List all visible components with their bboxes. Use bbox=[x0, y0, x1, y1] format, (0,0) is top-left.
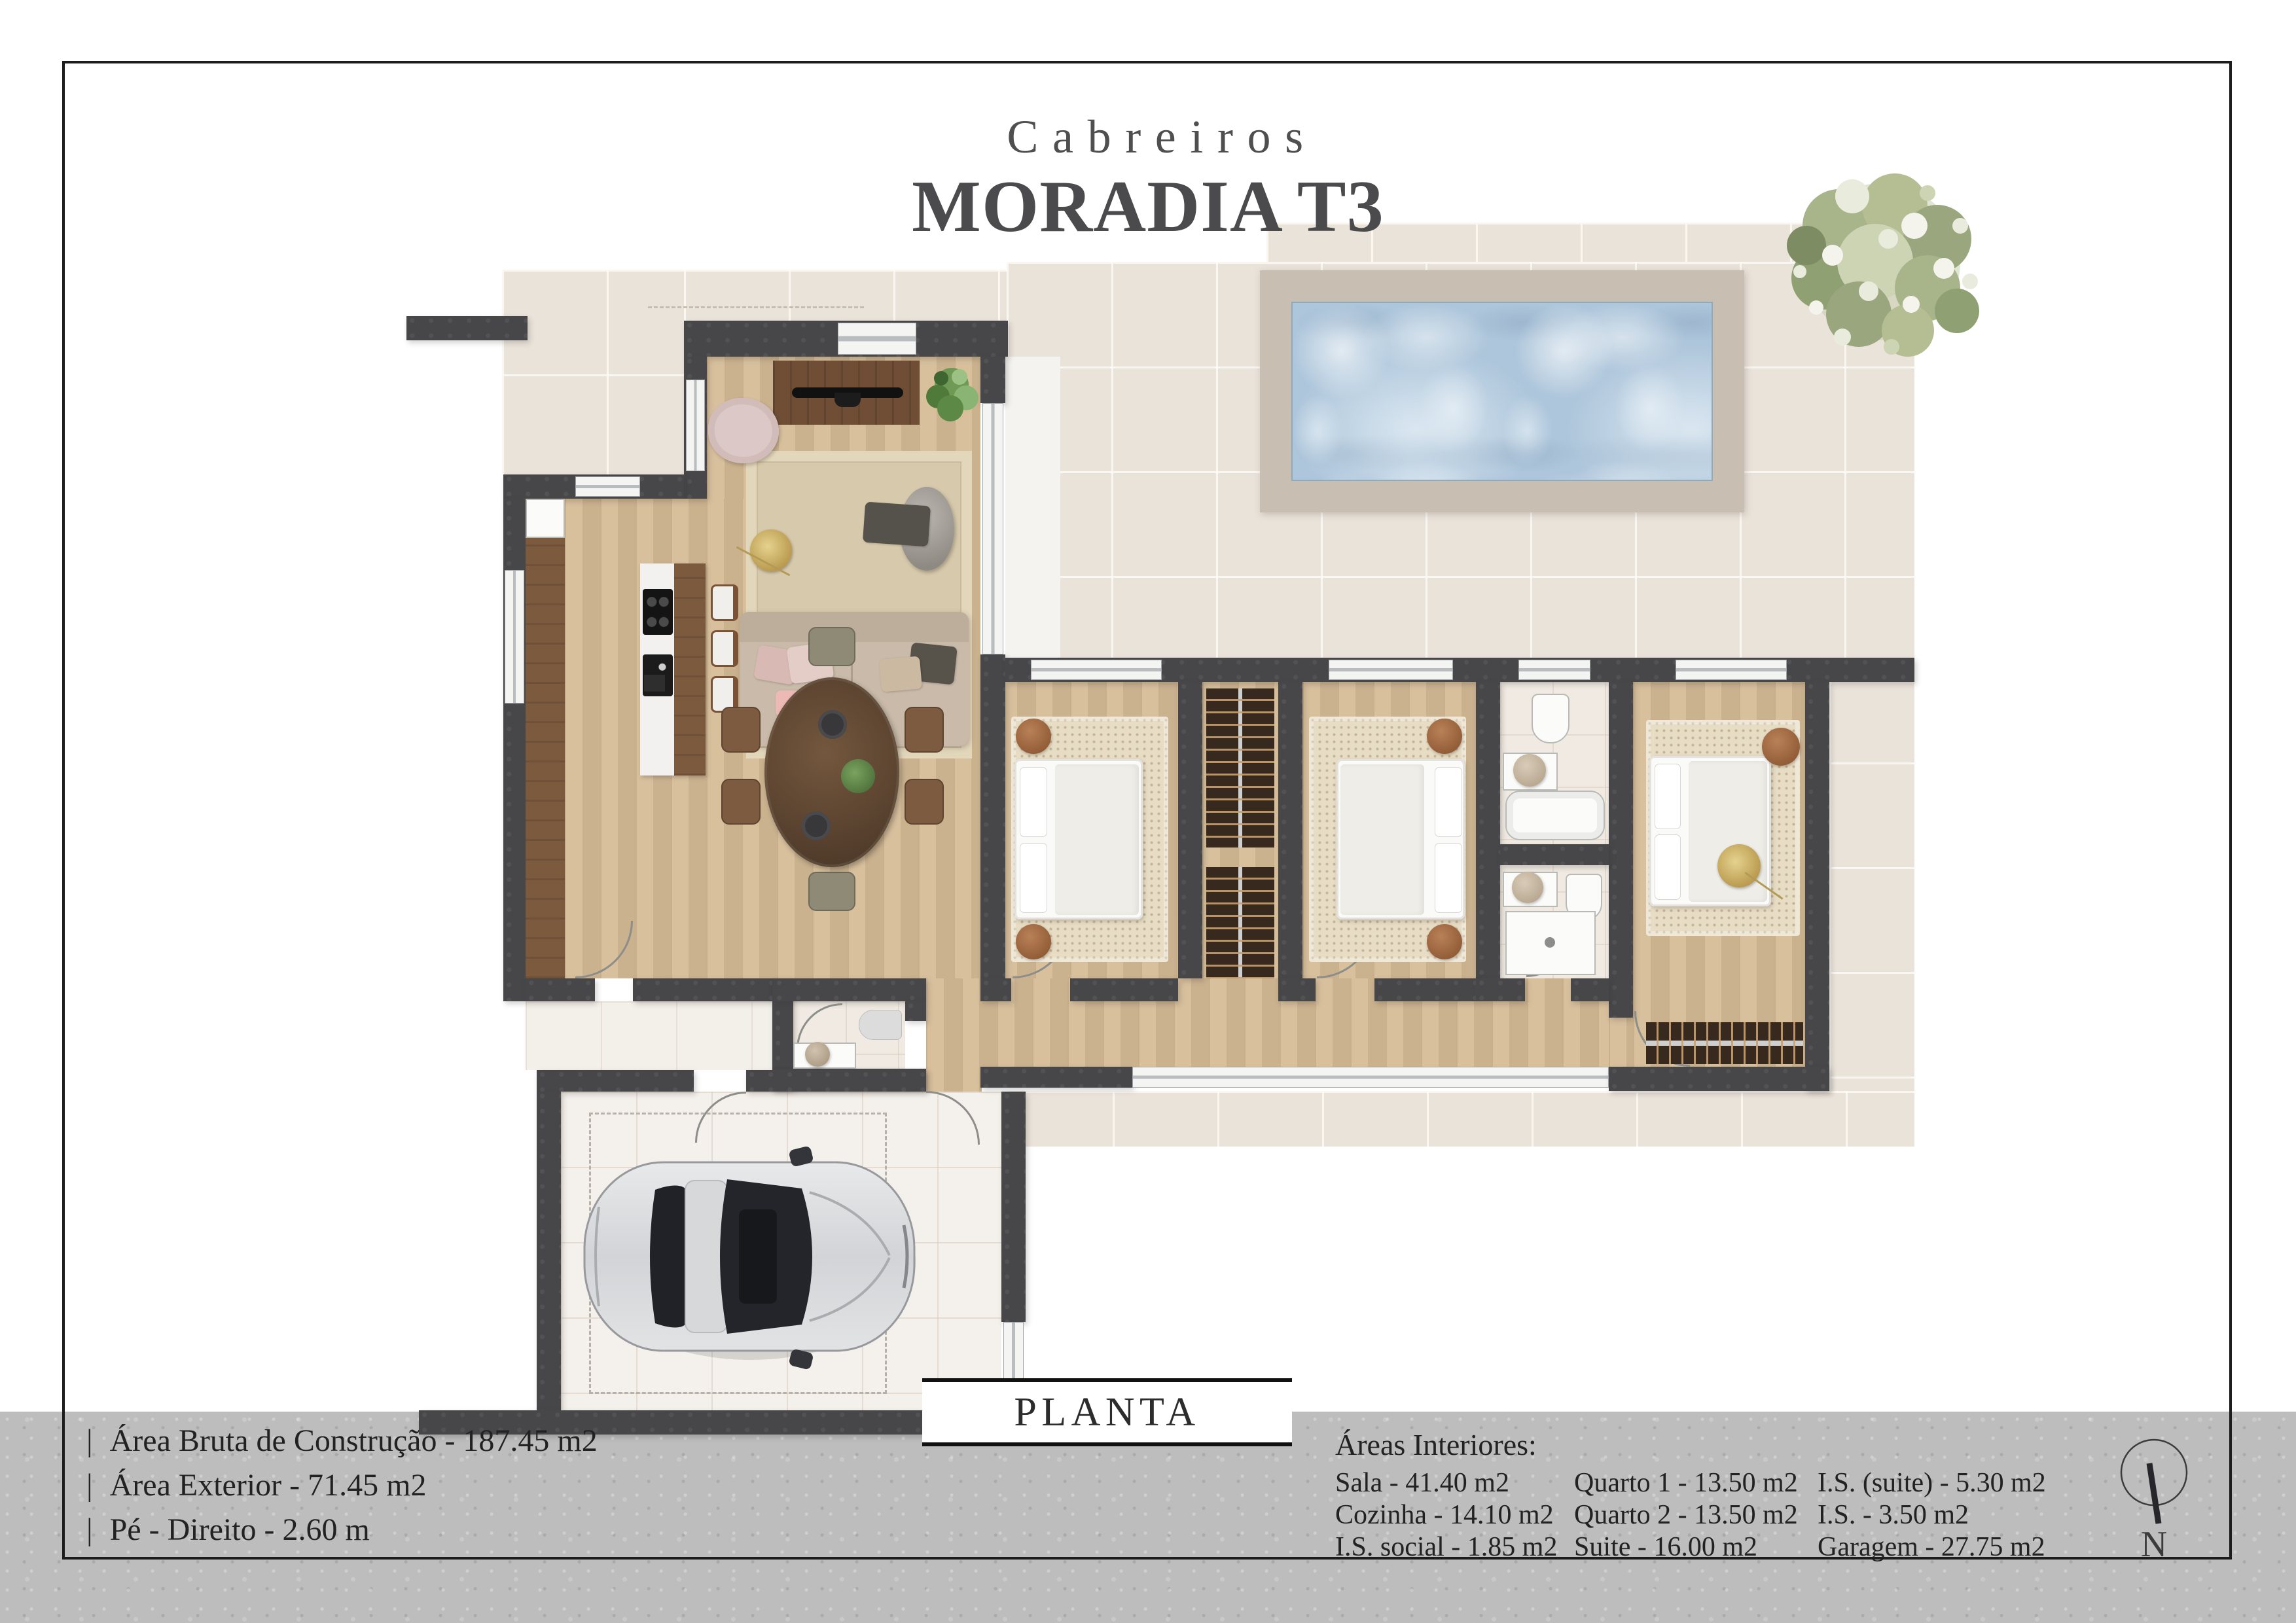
pipe-divider: | bbox=[86, 1419, 93, 1463]
kitchen-sink bbox=[643, 654, 673, 696]
wc-toilet bbox=[859, 1010, 902, 1040]
bar-stool bbox=[711, 630, 738, 667]
interior-areas: Áreas Interiores: Sala - 41.40 m2 Cozinh… bbox=[1335, 1427, 2079, 1563]
walkway-white-strip bbox=[1005, 357, 1060, 658]
suite-wardrobe bbox=[1646, 1022, 1803, 1064]
terrace-top bbox=[684, 270, 1008, 321]
info-left: |Área Bruta de Construção - 187.45 m2 |Á… bbox=[86, 1419, 598, 1552]
plan-label: PLANTA bbox=[1014, 1389, 1200, 1436]
dining-chair bbox=[808, 872, 855, 911]
info-text: Área Bruta de Construção - 187.45 m2 bbox=[110, 1423, 598, 1458]
wall-hall-south bbox=[980, 1067, 1132, 1088]
wc-basin bbox=[805, 1042, 830, 1067]
bedside-table bbox=[1016, 924, 1051, 959]
dining-chair bbox=[721, 779, 761, 825]
areas-column-3: I.S. (suite) - 5.30 m2 I.S. - 3.50 m2 Ga… bbox=[1818, 1467, 2079, 1563]
wall-stub-topleft bbox=[406, 316, 528, 340]
info-line: |Área Exterior - 71.45 m2 bbox=[86, 1463, 598, 1508]
plate bbox=[802, 811, 831, 840]
wall-bath-suite bbox=[1609, 682, 1633, 1018]
window-kitchen-jog bbox=[575, 476, 640, 497]
terrace-walk-south bbox=[1008, 1091, 1914, 1147]
dining-table bbox=[764, 677, 899, 867]
table-plant bbox=[841, 759, 875, 793]
info-text: Área Exterior - 71.45 m2 bbox=[110, 1468, 427, 1503]
washbasin bbox=[1512, 872, 1543, 903]
window-bedroom1 bbox=[1031, 660, 1162, 680]
window-living-left bbox=[686, 380, 705, 471]
entry-porch bbox=[526, 1001, 772, 1070]
wardrobe bbox=[1206, 688, 1274, 847]
dining-chair bbox=[905, 707, 944, 753]
wall-living-bottom-a bbox=[526, 978, 595, 1001]
wall-q1-bottom-a bbox=[980, 978, 1011, 1001]
info-line: |Pé - Direito - 2.60 m bbox=[86, 1508, 598, 1552]
bedside-table bbox=[1427, 924, 1462, 959]
bedside-table bbox=[1427, 719, 1462, 754]
washbasin bbox=[1513, 754, 1546, 787]
area-item: I.S. - 3.50 m2 bbox=[1818, 1499, 2079, 1531]
tv-stand bbox=[834, 393, 861, 407]
wall-q1-corridor bbox=[1178, 682, 1202, 978]
wall-q2-bottom-a bbox=[1278, 978, 1316, 1001]
wall-corridor-q2 bbox=[1278, 682, 1302, 978]
dining-chair bbox=[808, 627, 855, 666]
cooktop bbox=[643, 589, 673, 635]
dining-chair bbox=[905, 779, 944, 825]
wall-bath-divider bbox=[1500, 844, 1609, 865]
window-kitchen-left bbox=[505, 570, 524, 704]
pillow bbox=[1435, 843, 1462, 913]
pool bbox=[1291, 302, 1713, 481]
window-living-top bbox=[838, 323, 916, 355]
window-hall-south-glass bbox=[1132, 1067, 1609, 1088]
suite-door-floor bbox=[1609, 1018, 1633, 1067]
wall-bath-bottom-b bbox=[1571, 978, 1609, 1001]
wardrobe bbox=[1206, 867, 1274, 978]
area-item: Cozinha - 14.10 m2 bbox=[1335, 1499, 1574, 1531]
wall-suite-right bbox=[1805, 682, 1829, 1091]
info-text: Pé - Direito - 2.60 m bbox=[110, 1512, 370, 1547]
kitchen-counter bbox=[526, 538, 565, 978]
terrace-left bbox=[502, 270, 684, 474]
wall-suite-bottom bbox=[1609, 1067, 1829, 1091]
area-item: Quarto 2 - 13.50 m2 bbox=[1574, 1499, 1818, 1531]
wall-wc-right-stub bbox=[905, 1001, 926, 1021]
duvet bbox=[1340, 764, 1424, 915]
pipe-divider: | bbox=[86, 1508, 93, 1552]
terrace-right-strip bbox=[1829, 658, 1914, 1145]
area-item: Quarto 1 - 13.50 m2 bbox=[1574, 1467, 1818, 1499]
dining-chair bbox=[721, 707, 761, 753]
pillow bbox=[1655, 764, 1681, 829]
wall-garage-top-a bbox=[537, 1070, 694, 1092]
wall-garage-left bbox=[537, 1092, 561, 1410]
area-item: Suite - 16.00 m2 bbox=[1574, 1531, 1818, 1563]
bidet bbox=[1532, 694, 1570, 743]
area-item: Sala - 41.40 m2 bbox=[1335, 1467, 1574, 1499]
pipe-divider: | bbox=[86, 1463, 93, 1508]
areas-heading: Áreas Interiores: bbox=[1335, 1427, 2079, 1463]
shower-drain bbox=[1545, 937, 1555, 948]
info-line: |Área Bruta de Construção - 187.45 m2 bbox=[86, 1419, 598, 1463]
pillow bbox=[1020, 767, 1047, 837]
wall-garage-right-a bbox=[1001, 1092, 1026, 1322]
pillow bbox=[1655, 834, 1681, 900]
plant-icon bbox=[922, 359, 984, 437]
areas-columns: Sala - 41.40 m2 Cozinha - 14.10 m2 I.S. … bbox=[1335, 1467, 2079, 1563]
bedside-table bbox=[1016, 719, 1051, 754]
window-bedroom2 bbox=[1329, 660, 1453, 680]
window-bathroom bbox=[1518, 660, 1590, 680]
page-title: MORADIA T3 bbox=[0, 165, 2296, 249]
bedside-table bbox=[1762, 728, 1800, 766]
bar-stool bbox=[711, 584, 738, 621]
compass-north-label: N bbox=[2141, 1524, 2167, 1563]
wall-living-bottom-b bbox=[633, 978, 774, 1001]
wall-q2-bath bbox=[1476, 682, 1500, 978]
brand-name: Cabreiros bbox=[0, 110, 2296, 164]
wall-garage-top-b bbox=[746, 1070, 926, 1092]
window-suite bbox=[1676, 660, 1787, 680]
pillow bbox=[1435, 767, 1462, 837]
area-item: I.S. (suite) - 5.30 m2 bbox=[1818, 1467, 2079, 1499]
area-item: Garagem - 27.75 m2 bbox=[1818, 1531, 2079, 1563]
pillow bbox=[1020, 843, 1047, 913]
kitchen-tall-cabinet bbox=[526, 499, 565, 538]
wall-bath-bottom-a bbox=[1476, 978, 1525, 1001]
page: Cabreiros MORADIA T3 PLANTA |Área Bruta … bbox=[0, 0, 2296, 1623]
armchair bbox=[708, 398, 779, 463]
areas-column-2: Quarto 1 - 13.50 m2 Quarto 2 - 13.50 m2 … bbox=[1574, 1467, 1818, 1563]
plate bbox=[818, 710, 847, 739]
car-icon bbox=[579, 1147, 920, 1369]
bathtub bbox=[1505, 791, 1605, 840]
suite-floor-lamp bbox=[1717, 844, 1761, 887]
wall-living-right-bottom bbox=[980, 654, 1005, 978]
expansion-joint bbox=[648, 306, 864, 308]
areas-column-1: Sala - 41.40 m2 Cozinha - 14.10 m2 I.S. … bbox=[1335, 1467, 1574, 1563]
wall-wc-top bbox=[774, 978, 926, 1001]
kitchen-island-wood bbox=[674, 563, 706, 776]
wall-q2-bottom-b bbox=[1374, 978, 1476, 1001]
plan-label-box: PLANTA bbox=[922, 1378, 1292, 1446]
area-item: I.S. social - 1.85 m2 bbox=[1335, 1531, 1574, 1563]
sofa-cushion-grey bbox=[879, 656, 922, 692]
throw-blanket bbox=[863, 502, 931, 547]
sliding-door-living-terrace bbox=[982, 403, 1003, 654]
north-compass-icon: N bbox=[2106, 1425, 2204, 1563]
wall-living-right-top bbox=[980, 357, 1005, 403]
duvet bbox=[1055, 764, 1139, 915]
wall-q1-bottom-b bbox=[1070, 978, 1178, 1001]
